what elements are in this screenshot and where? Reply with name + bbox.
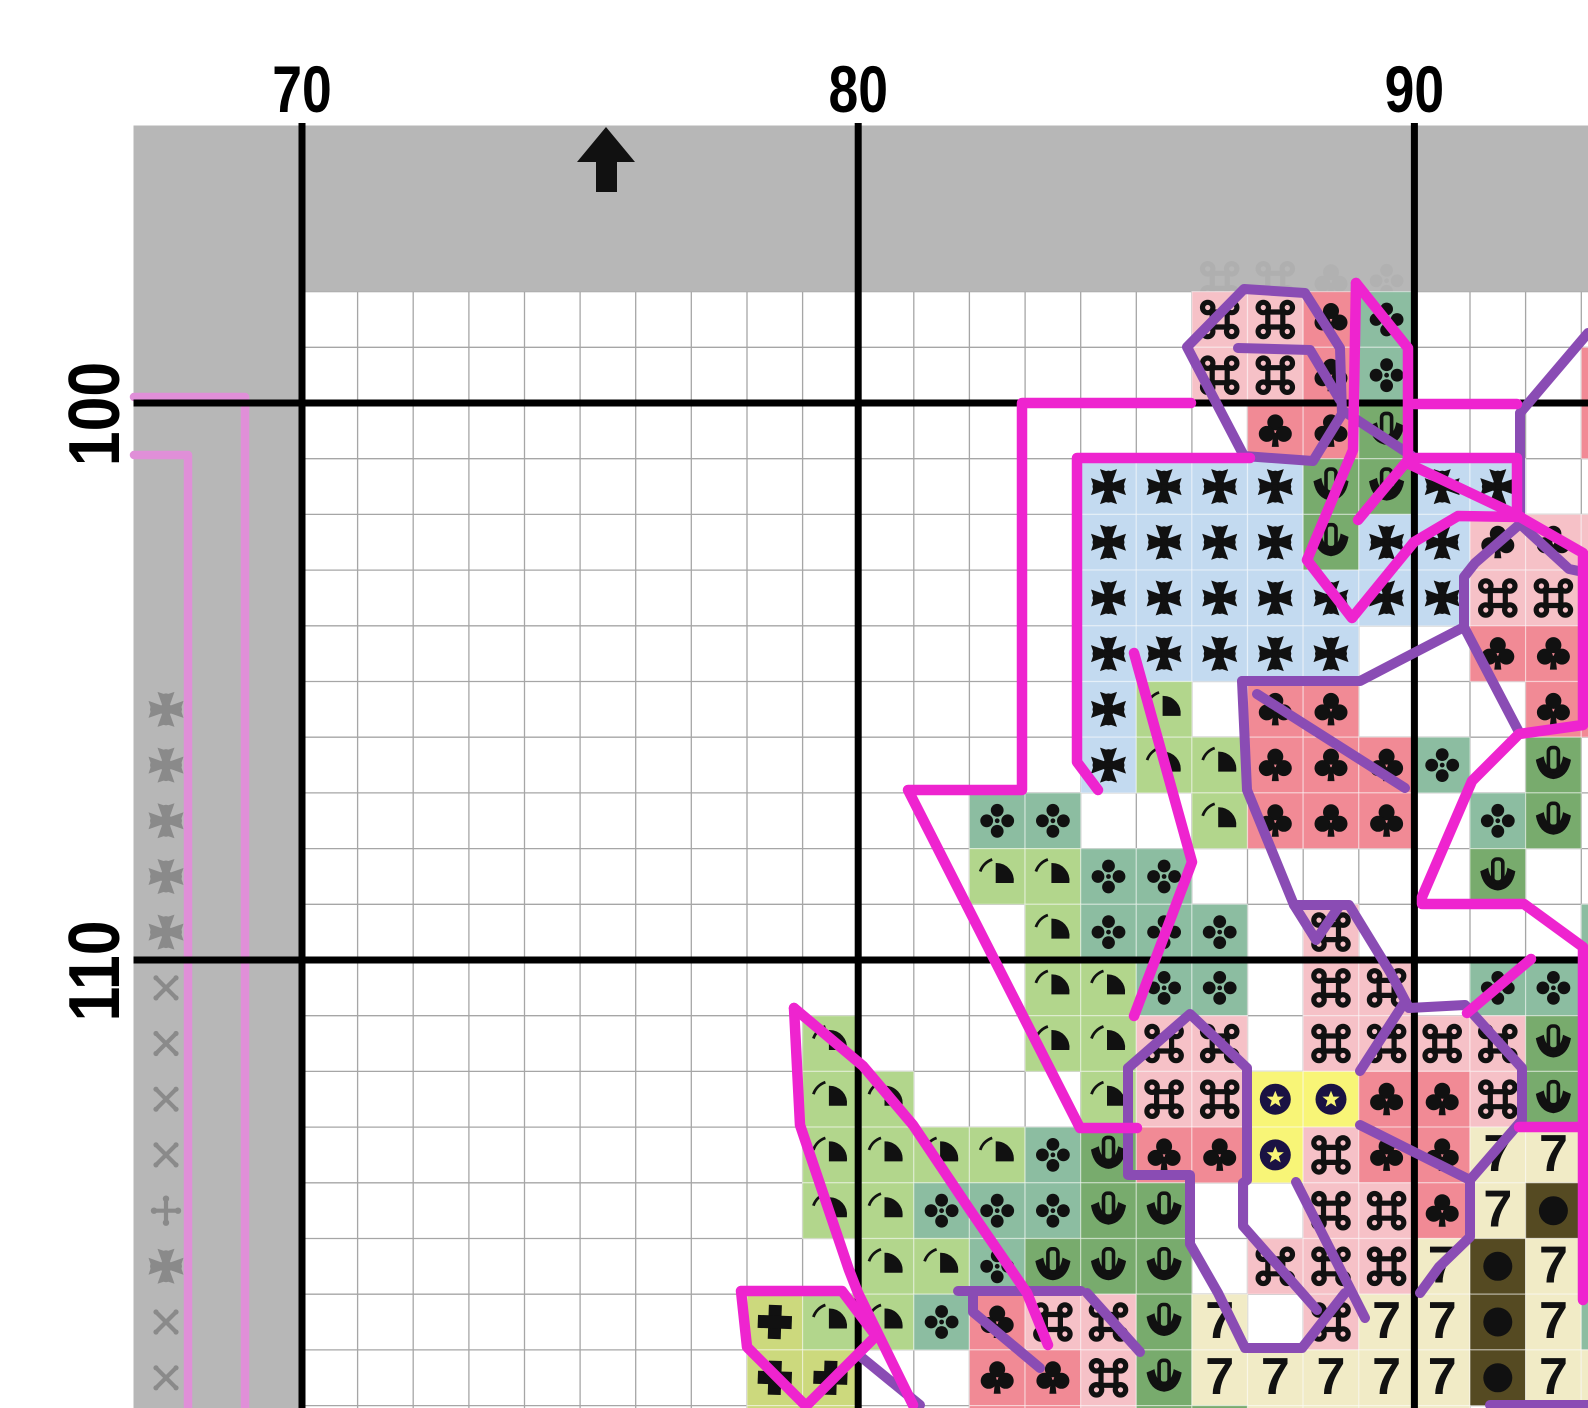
svg-text:110: 110 <box>55 920 135 1021</box>
svg-text:100: 100 <box>55 362 135 466</box>
svg-text:90: 90 <box>1385 53 1444 127</box>
svg-text:80: 80 <box>828 53 887 127</box>
svg-text:70: 70 <box>272 53 331 127</box>
